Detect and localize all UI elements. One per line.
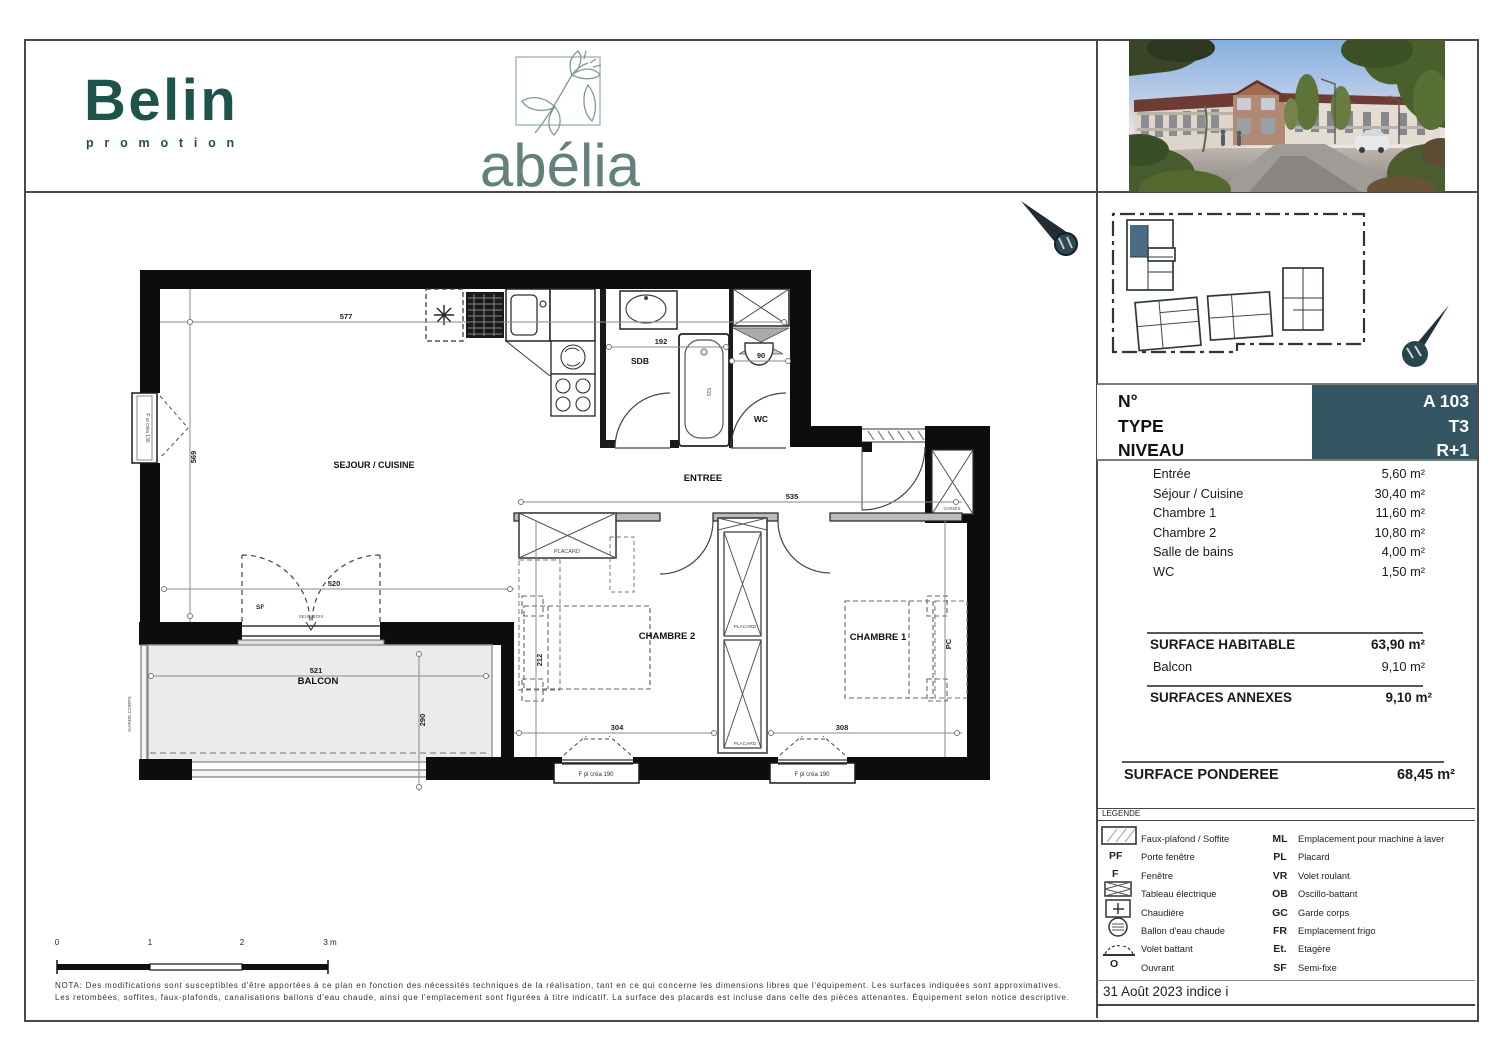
svg-text:PC: PC xyxy=(944,638,953,649)
svg-text:535: 535 xyxy=(786,492,799,501)
svg-text:PLACARD: PLACARD xyxy=(734,624,757,630)
svg-text:abélia: abélia xyxy=(480,132,641,195)
svg-text:2: 2 xyxy=(240,938,245,947)
svg-text:515: 515 xyxy=(705,388,711,397)
svg-text:290: 290 xyxy=(418,714,427,727)
svg-text:BALCON: BALCON xyxy=(298,676,339,687)
svg-text:192: 192 xyxy=(655,337,668,346)
svg-text:PLACARD: PLACARD xyxy=(734,741,757,747)
svg-text:WC: WC xyxy=(754,414,768,424)
svg-text:SF: SF xyxy=(256,604,264,611)
svg-text:90: 90 xyxy=(757,351,765,360)
svg-text:SEJOUR / CUISINE: SEJOUR / CUISINE xyxy=(333,460,414,470)
svg-text:Les retombées, soffites, faux-: Les retombées, soffites, faux-plafonds, … xyxy=(55,993,1070,1002)
svg-text:ENTREE: ENTREE xyxy=(684,473,723,484)
svg-text:3 m: 3 m xyxy=(323,938,337,947)
svg-text:212: 212 xyxy=(535,654,544,667)
svg-text:F pl créa 190: F pl créa 190 xyxy=(578,772,614,778)
svg-text:308: 308 xyxy=(836,723,849,732)
svg-text:CHAMBRE 1: CHAMBRE 1 xyxy=(850,632,907,643)
svg-text:569: 569 xyxy=(189,451,198,464)
svg-text:0: 0 xyxy=(55,938,60,947)
svg-text:F ai créa 130: F ai créa 130 xyxy=(144,413,150,442)
svg-text:SDB: SDB xyxy=(631,356,649,366)
svg-text:577: 577 xyxy=(340,312,353,321)
svg-text:CHAMBRE 2: CHAMBRE 2 xyxy=(639,631,695,642)
svg-text:521: 521 xyxy=(310,666,323,675)
svg-text:F pl créa 190: F pl créa 190 xyxy=(794,772,830,778)
svg-text:304: 304 xyxy=(611,723,624,732)
svg-text:520: 520 xyxy=(328,579,341,588)
svg-text:NOTA: Des modifications sont s: NOTA: Des modifications sont susceptible… xyxy=(55,981,1062,990)
svg-text:1: 1 xyxy=(148,938,153,947)
svg-text:GARDE CORPS: GARDE CORPS xyxy=(127,696,133,731)
svg-text:PLACARD: PLACARD xyxy=(554,549,580,555)
svg-text:GAINES: GAINES xyxy=(943,506,960,511)
svg-text:SEUIL BOIS: SEUIL BOIS xyxy=(299,614,324,619)
